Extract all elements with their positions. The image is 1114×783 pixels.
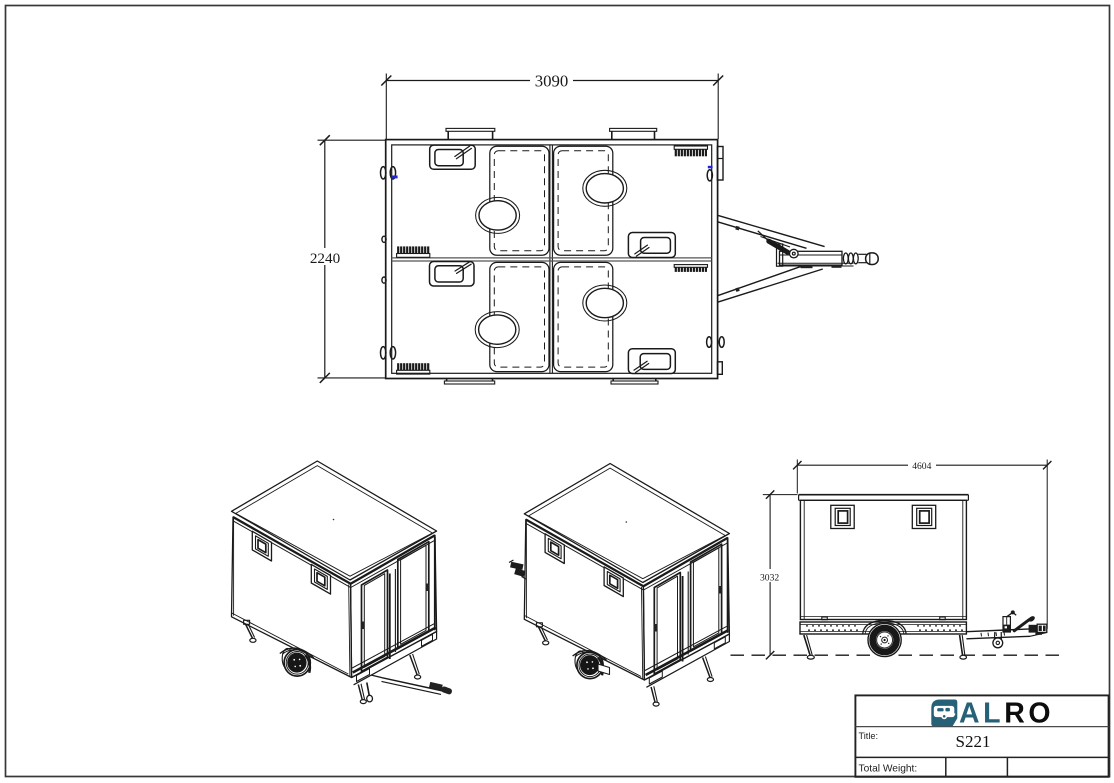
svg-text:4604: 4604 [912,461,931,472]
svg-text:3090: 3090 [535,71,569,90]
svg-text:Title:: Title: [859,731,879,741]
svg-text:3032: 3032 [760,572,779,583]
svg-text:S221: S221 [956,732,991,751]
svg-text:2240: 2240 [310,250,341,267]
svg-text:ALRO: ALRO [959,698,1054,730]
svg-text:Total Weight:: Total Weight: [859,763,918,774]
